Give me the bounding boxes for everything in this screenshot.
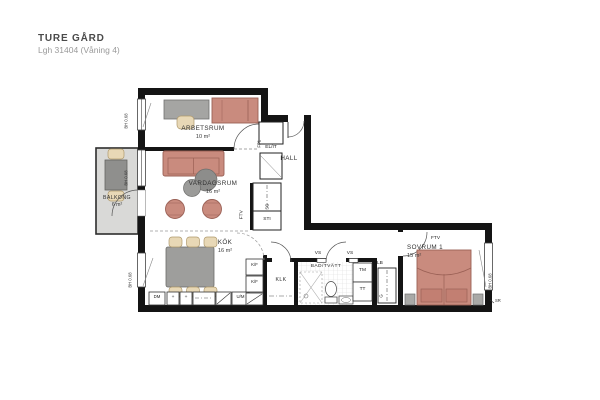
kf-label: K/F: [246, 263, 263, 268]
shaft-vs: [349, 259, 358, 263]
vs-label: VS: [343, 251, 357, 256]
bh-label-vardagsrum: BH 0.68: [124, 170, 129, 185]
shaft-vs: [317, 259, 326, 263]
bh-label-arbetsrum: BH 0.68: [124, 113, 129, 128]
room-label-klk: KLK: [267, 278, 295, 284]
room-label-kok: KÖK: [210, 240, 240, 247]
g-label: G: [379, 294, 384, 297]
nightstand: [473, 294, 483, 305]
dining-table: [166, 247, 214, 287]
bh-label-sovrum: BH 0.68: [488, 273, 493, 288]
plan-subtitle: Lgh 31404 (Våning 4): [38, 46, 120, 55]
sg-label: SG: [265, 204, 270, 210]
vs-label: VS: [311, 251, 325, 256]
room-label-badtvatt: BAD/TVÄTT: [298, 264, 354, 269]
kok-opening-arc: [237, 233, 264, 260]
dm-label: DM: [149, 295, 165, 300]
balcony-chair: [108, 149, 124, 159]
um-label: U/M: [232, 295, 249, 300]
area-label-vardagsrum: 16 m²: [168, 189, 258, 195]
pillow: [446, 289, 467, 302]
area-label-sovrum1: 15 m²: [407, 253, 421, 259]
area-label-kok: 16 m²: [210, 248, 240, 254]
toilet: [325, 282, 337, 304]
entry-door-opening: [288, 114, 304, 123]
single-bed: [212, 98, 258, 123]
hob-plus: +: [167, 295, 179, 300]
nightstand: [405, 294, 415, 305]
sink: [339, 296, 353, 304]
room-label-balkong: BALKONG: [95, 196, 139, 202]
hob-plus: +: [180, 295, 192, 300]
floorplan-drawing: [0, 0, 600, 400]
sti-label: STI: [253, 217, 281, 222]
tm-label: TM: [353, 268, 372, 273]
sofa: [163, 151, 224, 176]
kf-label: K/F: [246, 280, 263, 285]
area-label-balkong: 6 m²: [95, 203, 139, 209]
klk-closet: [269, 242, 292, 296]
floorplan-page: TURE GÅRD Lgh 31404 (Våning 4) ARBETSRUM…: [0, 0, 600, 400]
armchair: [166, 200, 185, 219]
armchair: [203, 200, 222, 219]
room-label-sovrum1: SOVRUM 1: [407, 245, 443, 252]
ftv-label-vardagsrum: FTV: [240, 210, 245, 219]
sovrum: [403, 232, 483, 305]
pillow: [421, 289, 442, 302]
bathroom: [298, 242, 372, 305]
bh-label-kok: BH 0.68: [128, 272, 133, 287]
ftv-label-sovrum: FTV: [431, 236, 440, 241]
area-label-arbetsrum: 10 m²: [158, 134, 248, 140]
entry-door: [288, 121, 304, 138]
klk-door-arc: [271, 242, 291, 262]
room-label-hall: HALL: [272, 156, 306, 163]
double-bed: [417, 250, 471, 305]
room-label-vardagsrum: VARDAGSRUM: [168, 181, 258, 188]
tt-label: TT: [353, 287, 372, 292]
lb-label: LB: [377, 261, 383, 266]
elit-cabinet: [259, 122, 283, 179]
shower: [300, 272, 322, 303]
fp1-label: FP1: [257, 140, 262, 148]
lb-closet: [378, 268, 396, 303]
balcony: [96, 148, 138, 234]
sr-label: SR: [495, 299, 501, 304]
room-label-arbetsrum: ARBETSRUM: [158, 126, 248, 133]
plan-title: TURE GÅRD: [38, 33, 105, 44]
